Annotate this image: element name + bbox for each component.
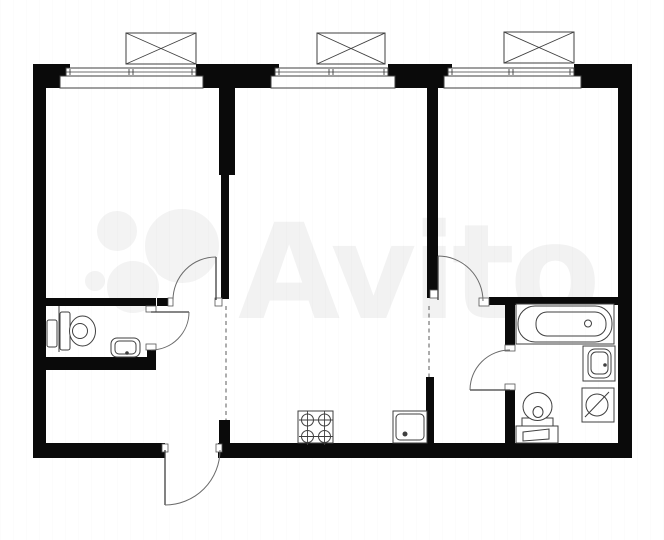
wc-top-wall bbox=[46, 298, 156, 306]
floor-plan-drawing: Avito bbox=[0, 0, 664, 540]
floor-plan: Avito bbox=[0, 0, 664, 540]
watermark-logo-circle bbox=[84, 270, 106, 292]
bathroom-door-jamb-bottom bbox=[505, 384, 515, 390]
outer-bottom-wall-right bbox=[218, 443, 632, 458]
wc-bottom-wall bbox=[46, 357, 156, 370]
left-room-door-jamb-left bbox=[168, 298, 173, 306]
bathroom-left-wall-upper bbox=[505, 305, 515, 347]
wc-top-wall-stub bbox=[157, 298, 168, 306]
bathroom-left-wall-lower bbox=[505, 390, 515, 443]
bathroom-cabinet bbox=[516, 426, 558, 443]
ac-unit-1 bbox=[126, 33, 196, 64]
divider-left-room-lower bbox=[221, 175, 229, 299]
kitchen-sink bbox=[393, 411, 427, 443]
wc-door-jamb-bottom bbox=[146, 344, 156, 350]
hall-kitchen-wall-stub bbox=[219, 420, 230, 443]
bathroom-toilet bbox=[522, 393, 553, 429]
outer-top-wall-seg-2 bbox=[388, 64, 452, 88]
ac-units bbox=[126, 32, 574, 64]
watermark-logo-circle bbox=[96, 210, 138, 252]
right-room-door-jamb-right bbox=[479, 298, 489, 306]
right-room-door-jamb-left bbox=[430, 290, 438, 298]
outer-right-wall bbox=[618, 64, 632, 458]
wc-washbasin bbox=[111, 338, 140, 357]
outer-top-wall-seg-1 bbox=[196, 64, 279, 88]
wc-door-jamb-top bbox=[146, 306, 156, 312]
ac-unit-2 bbox=[317, 33, 385, 64]
divider-left-room-upper bbox=[219, 88, 235, 175]
ac-unit-3 bbox=[504, 32, 574, 63]
entrance-jamb-right bbox=[216, 444, 222, 452]
outer-left-wall bbox=[33, 64, 46, 458]
wc-water-heater bbox=[47, 320, 57, 347]
washing-machine bbox=[582, 388, 614, 422]
window-1 bbox=[60, 68, 203, 88]
divider-right-room bbox=[427, 88, 438, 298]
bathtub bbox=[516, 304, 614, 344]
bathroom-washbasin bbox=[583, 346, 615, 381]
stove bbox=[298, 411, 333, 445]
outer-bottom-wall-left bbox=[33, 443, 165, 458]
window-2 bbox=[271, 68, 395, 88]
wc-right-wall-stub bbox=[147, 350, 156, 360]
windows bbox=[60, 68, 581, 88]
window-3 bbox=[444, 68, 581, 88]
